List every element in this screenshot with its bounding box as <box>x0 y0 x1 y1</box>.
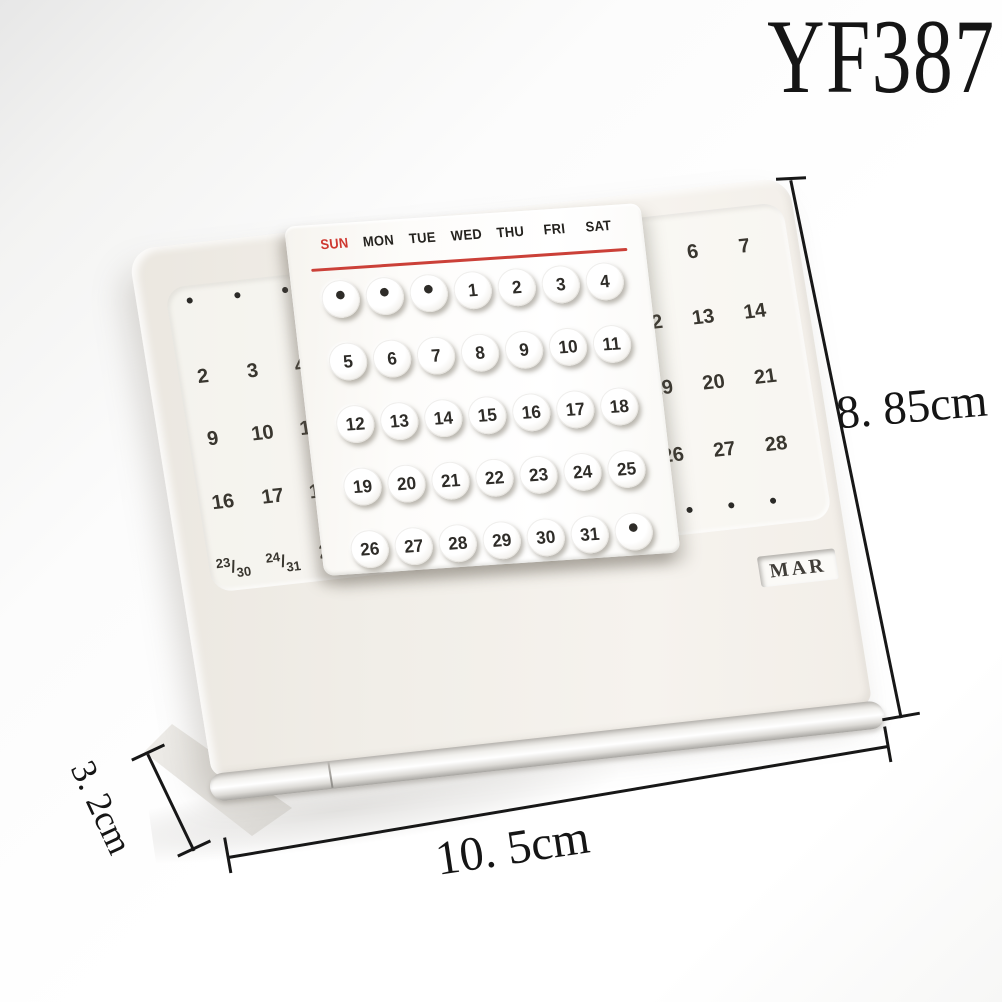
printed-date: 21 <box>742 363 790 392</box>
product-photo: YF387 2 3 4 9 10 11 16 17 18 23/30 24/31… <box>0 0 1002 1002</box>
date-button: 14 <box>422 398 464 438</box>
date-button: 17 <box>554 389 596 429</box>
printed-date: 28 <box>752 430 800 459</box>
printed-date: 27 <box>701 435 749 464</box>
desk-calendar: 2 3 4 9 10 11 16 17 18 23/30 24/31 25 5 … <box>128 177 876 801</box>
date-button: 16 <box>510 392 552 432</box>
date-button: • <box>364 276 406 316</box>
weekday-header: SUN MON TUE WED THU FRI SAT <box>311 216 621 252</box>
date-button: 30 <box>525 517 567 557</box>
date-button: 10 <box>547 327 589 367</box>
printed-date: 17 <box>249 482 297 511</box>
printed-date: 10 <box>239 419 287 448</box>
weekday-tue: TUE <box>401 228 443 247</box>
date-button: 11 <box>591 324 633 364</box>
date-button: 15 <box>466 395 508 435</box>
date-button: 8 <box>459 333 501 373</box>
date-button: 29 <box>481 520 523 560</box>
date-button: 20 <box>385 463 427 503</box>
date-button: 21 <box>429 461 471 501</box>
date-button: 9 <box>503 330 545 370</box>
weekday-mon: MON <box>357 231 399 250</box>
dimension-tick <box>882 712 920 721</box>
date-button: 28 <box>437 523 479 563</box>
weekday-fri: FRI <box>533 219 575 238</box>
weekday-thu: THU <box>489 222 531 241</box>
printed-date: 9 <box>189 425 237 454</box>
date-button: 1 <box>452 270 494 310</box>
weekday-sat: SAT <box>577 217 619 236</box>
weekday-wed: WED <box>445 225 487 244</box>
printed-date: 13 <box>679 303 727 332</box>
date-button: 2 <box>496 267 538 307</box>
date-button: 4 <box>584 261 626 301</box>
height-label: 8. 85cm <box>834 374 990 441</box>
printed-date-fraction: 24/31 <box>257 542 310 582</box>
date-button: 5 <box>327 341 369 381</box>
date-button: 6 <box>371 338 413 378</box>
dimension-tick <box>884 726 893 762</box>
date-button: 3 <box>540 264 582 304</box>
date-slider: SUN MON TUE WED THU FRI SAT • • • 1 2 3 … <box>284 203 680 576</box>
date-button: 18 <box>598 386 640 426</box>
month-label: MAR <box>768 554 828 583</box>
printed-date: 14 <box>731 297 779 326</box>
printed-date: 7 <box>721 232 769 261</box>
depth-label: 3. 2cm <box>62 754 141 861</box>
date-button: 26 <box>349 529 391 569</box>
date-button: 25 <box>605 449 647 489</box>
date-button: • <box>320 279 362 319</box>
date-button: 13 <box>378 401 420 441</box>
header-underline <box>311 248 627 272</box>
model-code-text: YF387 <box>768 4 996 110</box>
date-button: 7 <box>415 336 457 376</box>
date-button: • <box>613 511 655 551</box>
printed-date: 3 <box>229 357 277 386</box>
date-button: 31 <box>569 514 611 554</box>
date-button: 22 <box>473 458 515 498</box>
printed-date-fraction: 23/30 <box>207 548 260 588</box>
date-button: • <box>408 273 450 313</box>
printed-date: 20 <box>690 368 738 397</box>
printed-date: 2 <box>179 362 227 391</box>
date-button: 23 <box>517 455 559 495</box>
date-button: 19 <box>341 466 383 506</box>
date-button: 12 <box>334 404 376 444</box>
printed-date: 6 <box>669 238 717 267</box>
hinge-seam <box>327 762 333 788</box>
printed-date: 16 <box>199 488 247 517</box>
date-button: 24 <box>561 452 603 492</box>
date-button: 27 <box>393 526 435 566</box>
weekday-sun: SUN <box>313 234 355 253</box>
